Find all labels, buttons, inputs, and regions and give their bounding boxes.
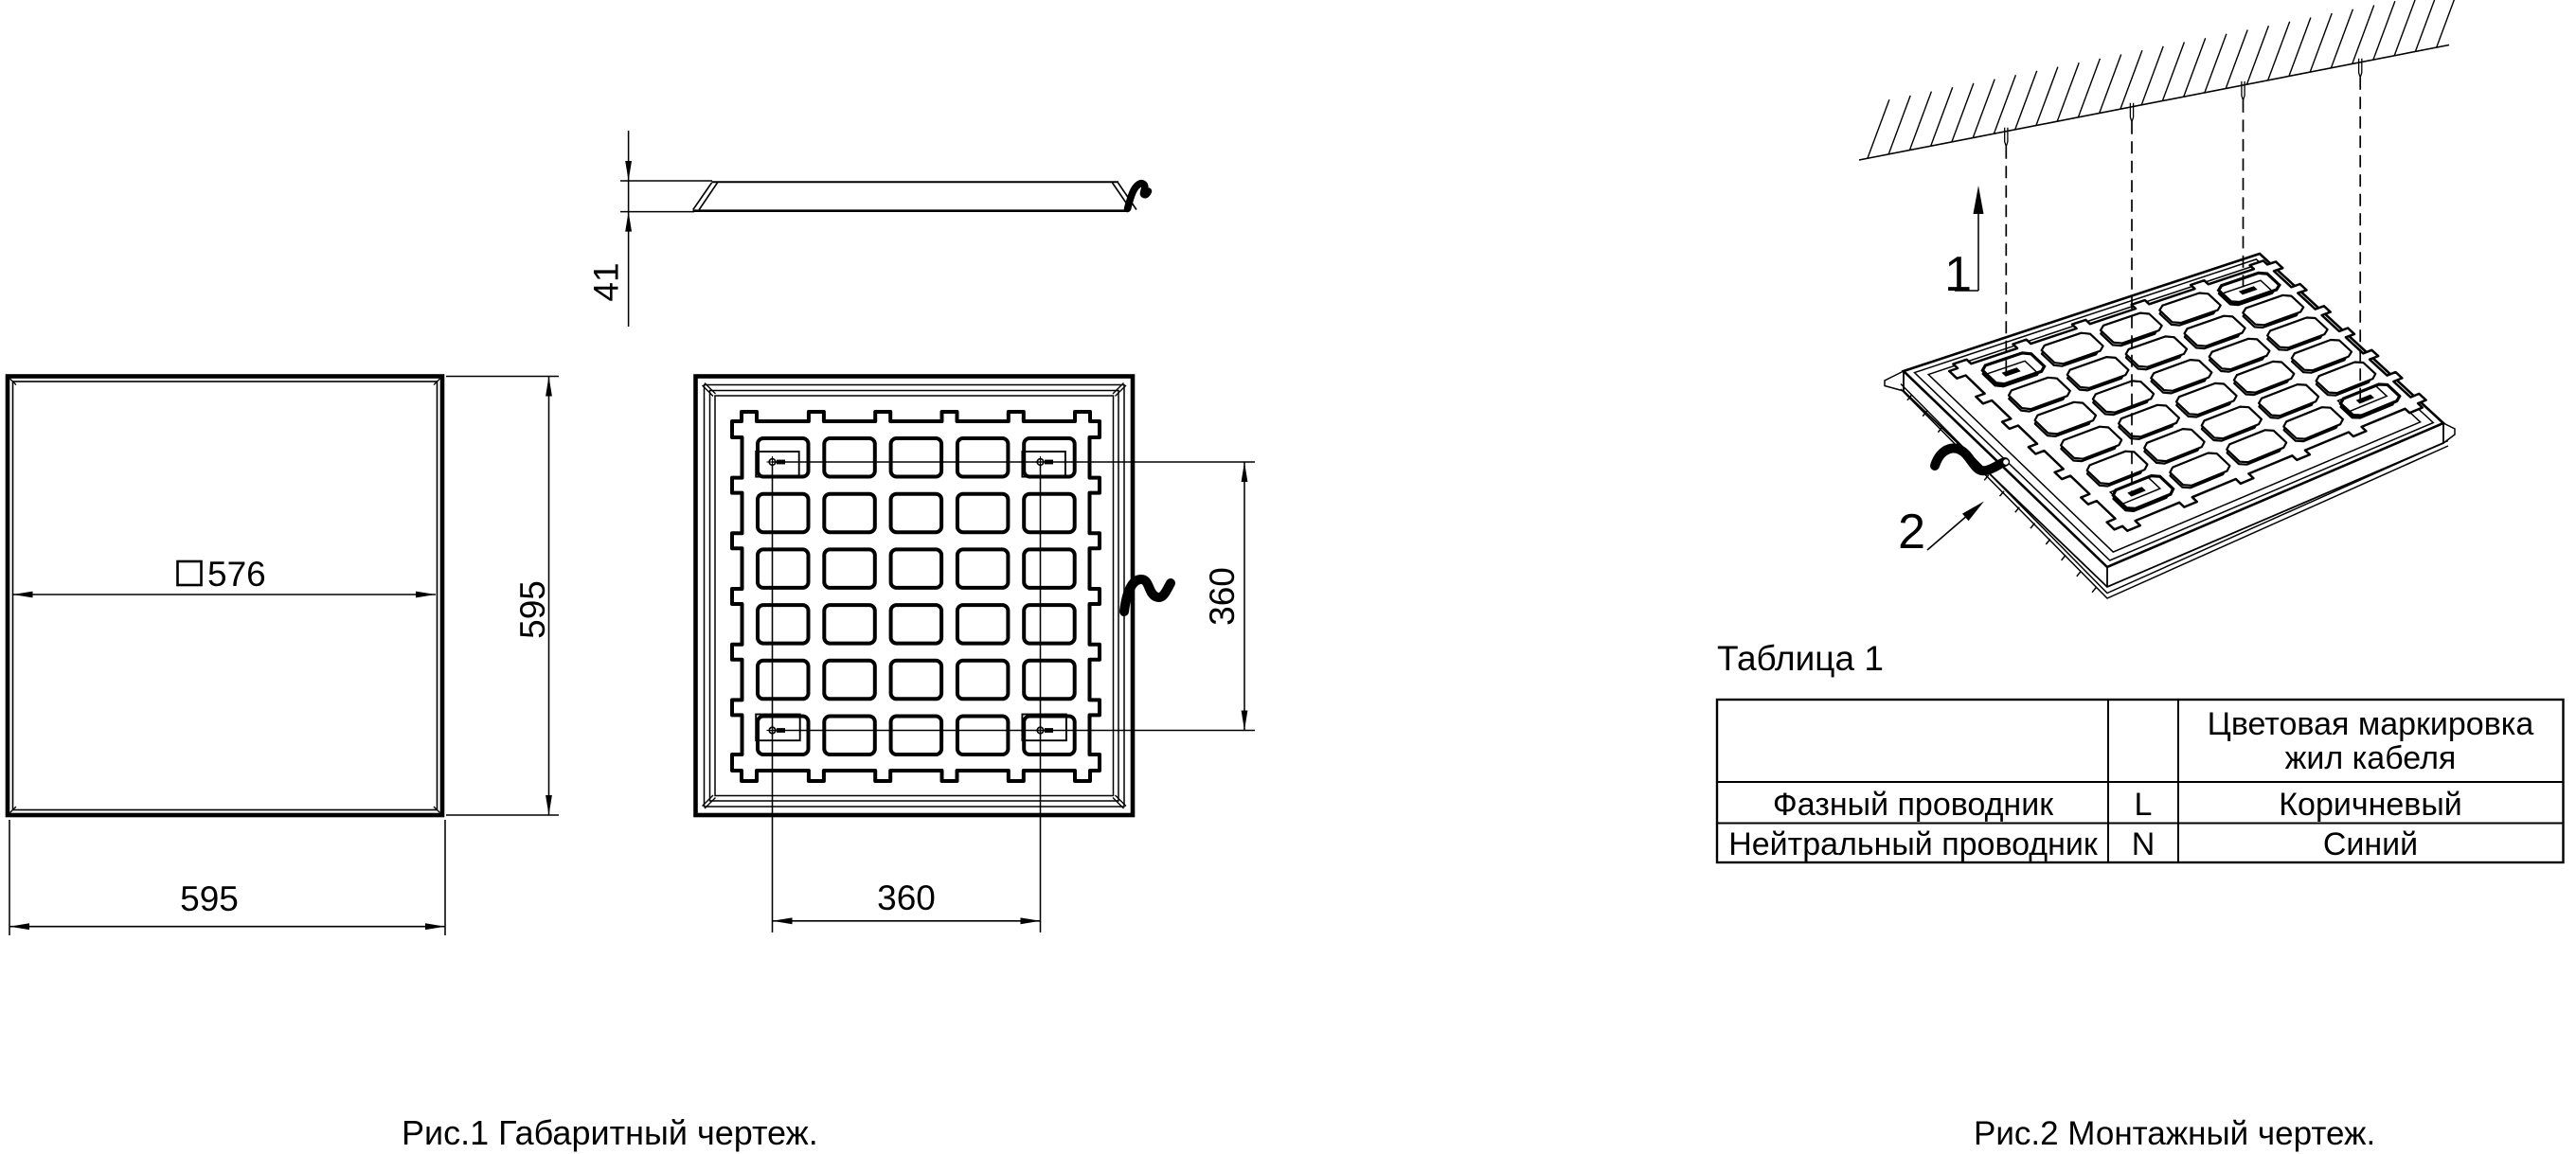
svg-text:2: 2 [1898, 505, 1925, 559]
svg-text:360: 360 [1203, 567, 1242, 626]
svg-text:595: 595 [180, 879, 239, 918]
svg-text:1: 1 [1944, 247, 1972, 302]
svg-text:Синий: Синий [2323, 826, 2418, 862]
svg-text:595: 595 [513, 580, 552, 639]
svg-text:Цветовая маркировка: Цветовая маркировка [2208, 706, 2534, 742]
svg-text:Рис.2 Монтажный чертеж.: Рис.2 Монтажный чертеж. [1974, 1115, 2375, 1152]
svg-text:N: N [2132, 826, 2156, 862]
svg-text:Таблица 1: Таблица 1 [1717, 639, 1884, 678]
svg-text:Коричневый: Коричневый [2279, 787, 2462, 823]
svg-text:Нейтральный проводник: Нейтральный проводник [1728, 826, 2099, 862]
svg-text:360: 360 [877, 879, 936, 917]
svg-text:576: 576 [207, 555, 266, 594]
svg-text:жил кабеля: жил кабеля [2285, 740, 2457, 776]
svg-text:Фазный проводник: Фазный проводник [1773, 787, 2054, 823]
svg-text:Рис.1 Габаритный чертеж.: Рис.1 Габаритный чертеж. [402, 1113, 818, 1152]
svg-text:41: 41 [587, 262, 626, 301]
svg-text:L: L [2135, 787, 2153, 823]
